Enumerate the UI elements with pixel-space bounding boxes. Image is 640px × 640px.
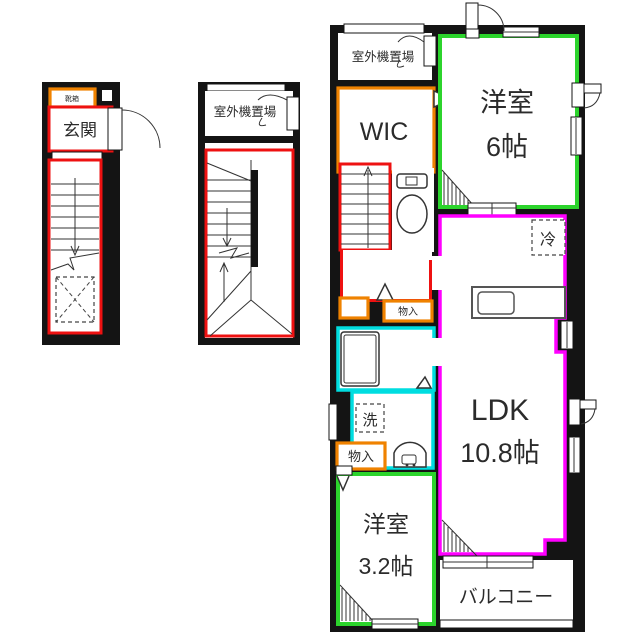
bedroom-6-room bbox=[440, 36, 577, 207]
outdoor-unit-label-b: 室外機置場 bbox=[214, 104, 277, 119]
outdoor-unit-label: 室外機置場 bbox=[352, 49, 415, 64]
genkan-label: 玄関 bbox=[63, 121, 97, 140]
staircase-c bbox=[340, 164, 390, 250]
bedroom-6-top-door-leaf bbox=[466, 3, 478, 29]
kitchen-counter-icon bbox=[472, 287, 565, 318]
staircase-top-window bbox=[207, 84, 285, 91]
bedroom-6-right-door-gap bbox=[572, 83, 584, 107]
washroom-left-window bbox=[329, 404, 337, 440]
storage-label: 物入 bbox=[348, 449, 374, 464]
balcony-railing bbox=[440, 620, 573, 628]
washbasin-icon bbox=[394, 442, 426, 467]
bedroom-3-room bbox=[338, 474, 434, 624]
storage-small-label: 物入 bbox=[398, 305, 418, 318]
staircase-handrail bbox=[251, 170, 258, 267]
toilet-icon bbox=[397, 174, 427, 233]
entrance-door-leaf bbox=[108, 108, 122, 150]
shoe-cabinet-label: 靴箱 bbox=[65, 94, 79, 103]
washroom-ldk-door-gap bbox=[432, 338, 442, 366]
ldk-room bbox=[440, 216, 565, 554]
washer-label: 洗 bbox=[362, 412, 377, 429]
plan-staircase: 室外機置場 bbox=[198, 82, 300, 345]
bedroom-3-label: 洋室 bbox=[363, 511, 409, 537]
bathtub-icon bbox=[341, 332, 379, 386]
staircase-b bbox=[206, 150, 293, 336]
outdoor-unit-door-b bbox=[287, 97, 299, 130]
plan-entrance: 靴箱 玄関 bbox=[42, 82, 160, 345]
ldk-right-door-leaf bbox=[580, 400, 596, 409]
outdoor-unit-door bbox=[424, 36, 436, 66]
bedroom-3-size: 3.2帖 bbox=[359, 553, 414, 579]
bedroom-3-door-gap bbox=[336, 466, 352, 475]
floor-plan-canvas: 靴箱 玄関 室外機置場 bbox=[0, 0, 640, 640]
balcony-label: バルコニー bbox=[459, 587, 554, 608]
ldk-size: 10.8帖 bbox=[460, 438, 540, 468]
storage-under-stairs bbox=[340, 298, 368, 318]
hall-ldk-door-gap bbox=[432, 256, 442, 290]
fridge-label: 冷 bbox=[540, 231, 556, 249]
floor-plan-drawing: 靴箱 玄関 室外機置場 bbox=[0, 0, 640, 640]
plan-main: 室外機置場 WIC 洋室 6帖 bbox=[329, 3, 601, 632]
wic-label: WIC bbox=[360, 118, 409, 146]
bedroom-6-size: 6帖 bbox=[486, 132, 528, 162]
meter-box bbox=[102, 90, 112, 101]
ldk-right-door-gap bbox=[569, 399, 580, 425]
outdoor-unit-window bbox=[344, 24, 424, 33]
bedroom-6-label: 洋室 bbox=[480, 88, 534, 118]
ldk-label: LDK bbox=[471, 394, 529, 427]
bedroom-6-right-door-arc bbox=[584, 93, 600, 108]
entrance-door-arc bbox=[122, 110, 160, 148]
bedroom-6-right-door-leaf bbox=[584, 84, 601, 93]
